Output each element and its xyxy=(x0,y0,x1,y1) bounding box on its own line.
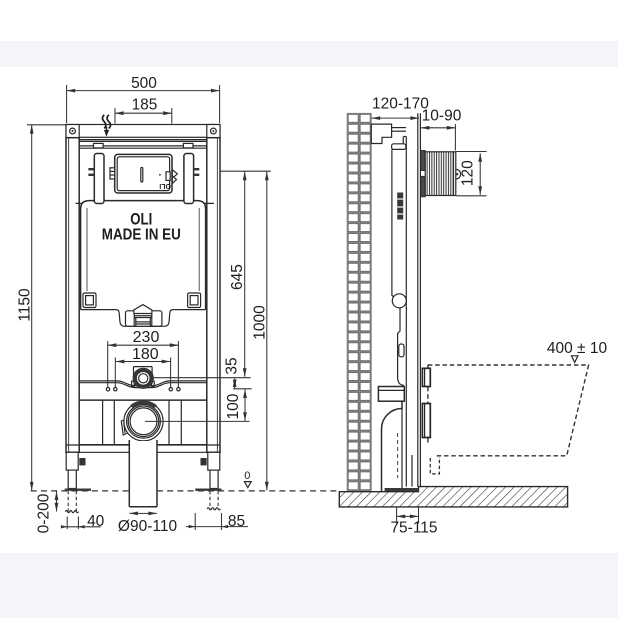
svg-text:85: 85 xyxy=(228,513,245,530)
svg-text:180: 180 xyxy=(132,346,159,363)
svg-text:0: 0 xyxy=(244,470,250,482)
svg-text:500: 500 xyxy=(131,75,157,92)
svg-text:1000: 1000 xyxy=(251,305,268,340)
svg-text:OLI: OLI xyxy=(159,182,171,189)
svg-text:0-200: 0-200 xyxy=(36,493,53,533)
svg-text:35: 35 xyxy=(224,357,241,374)
svg-text:40: 40 xyxy=(87,513,105,530)
svg-text:185: 185 xyxy=(132,97,158,114)
svg-text:MADE IN EU: MADE IN EU xyxy=(102,227,181,244)
svg-text:645: 645 xyxy=(229,264,246,290)
svg-text:100: 100 xyxy=(225,393,242,419)
svg-text:1150: 1150 xyxy=(16,288,33,322)
svg-text:400 ± 10: 400 ± 10 xyxy=(547,340,608,357)
svg-text:75-115: 75-115 xyxy=(390,520,437,537)
svg-text:230: 230 xyxy=(133,329,160,346)
svg-text:Ø90-110: Ø90-110 xyxy=(118,518,178,535)
svg-text:10-90: 10-90 xyxy=(422,108,462,125)
svg-text:120: 120 xyxy=(460,160,477,186)
svg-text:120-170: 120-170 xyxy=(372,96,429,113)
